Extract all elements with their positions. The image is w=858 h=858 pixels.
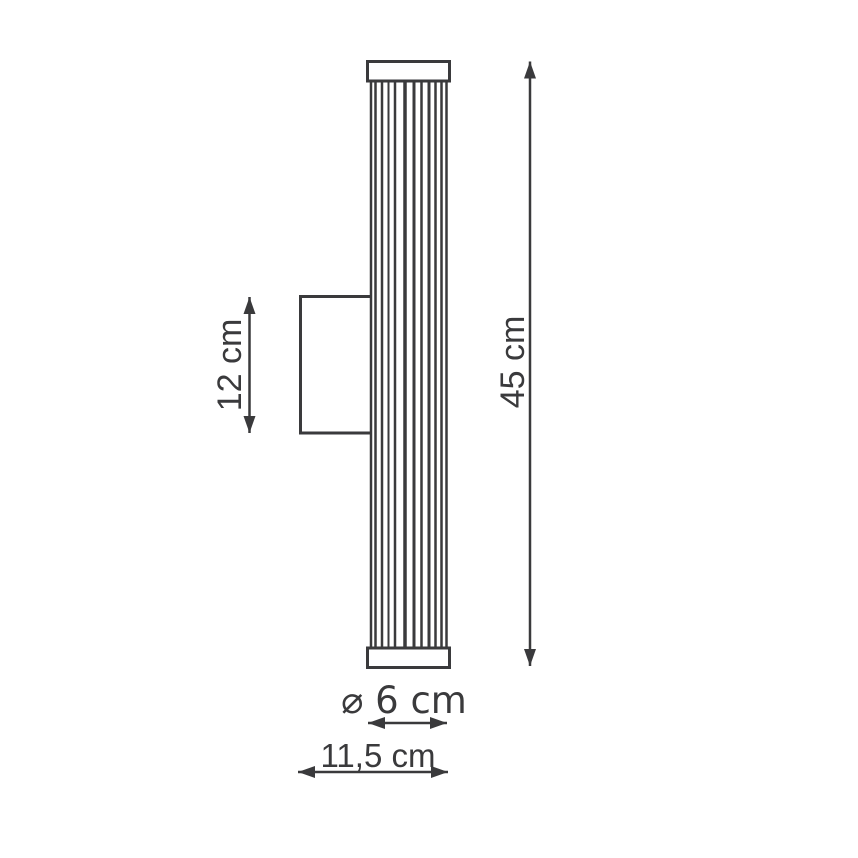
lamp-bottom-cap xyxy=(368,648,450,668)
lamp-technical-drawing: 12 cm 45 cm ⌀ 6 cm 11,5 cm xyxy=(0,0,858,858)
wall-bracket xyxy=(301,297,377,434)
lamp-top-cap xyxy=(368,62,450,82)
bracket-height-label: 12 cm xyxy=(211,319,249,412)
dimension-diagram: 12 cm 45 cm ⌀ 6 cm 11,5 cm xyxy=(0,0,858,858)
height-label: 45 cm xyxy=(494,316,532,409)
diameter-label: ⌀ 6 cm xyxy=(341,679,467,722)
depth-label: 11,5 cm xyxy=(321,737,436,774)
